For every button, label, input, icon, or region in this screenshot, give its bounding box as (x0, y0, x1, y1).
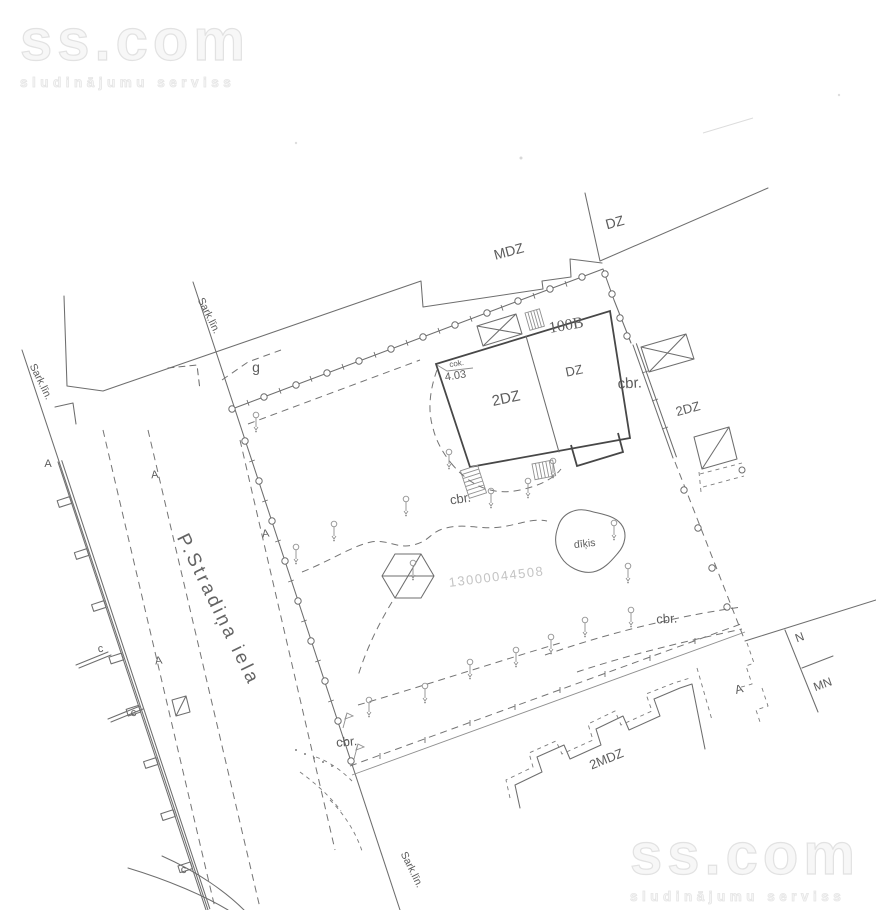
letter-c-label-1: c (97, 643, 105, 656)
cbr-label-2: cbr. (617, 374, 642, 392)
stairs-top (525, 309, 544, 330)
building-number-label: 100B (548, 314, 585, 337)
letter-a-label-2: A (151, 469, 160, 482)
letter-c-label-3: c (180, 864, 188, 877)
street-center-dashes (103, 430, 335, 908)
street-name-label: P.Stradiņa iela (172, 530, 264, 689)
cbr-label-4: cbr. (336, 733, 358, 750)
letter-n-label: N (793, 629, 806, 645)
gazebo-hexagon (382, 554, 434, 598)
elevation-abbr-label: cok. (449, 358, 465, 369)
tree-symbols (253, 412, 634, 717)
red-line-label-left: Sark.līn. (27, 362, 55, 402)
cbr-label-1: cbr. (449, 490, 472, 508)
wall-stub (92, 601, 107, 612)
letter-a-label-4: A (154, 654, 164, 667)
room-2dz-label: 2DZ (490, 387, 521, 410)
wall-stub (74, 549, 89, 560)
building-mdz-label: MDZ (492, 239, 526, 262)
room-dz-label: DZ (564, 361, 584, 379)
plan-labels: P.Stradiņa iela Sark.līn. Sark.līn. Sark… (27, 212, 834, 890)
scan-artifacts (295, 94, 840, 160)
main-building-outline (436, 309, 630, 498)
pond-label: dīķis (573, 537, 596, 551)
building-dz-top-label: DZ (604, 212, 627, 232)
letter-a-label-5: A (733, 681, 744, 697)
letter-a-label-3: A (261, 527, 271, 540)
cadastral-number-label: 13000044508 (448, 563, 545, 590)
site-plan-drawing: P.Stradiņa iela Sark.līn. Sark.līn. Sark… (0, 0, 876, 910)
wall-stub (57, 497, 72, 508)
letter-g-label: g (252, 359, 260, 375)
dotted-row (295, 749, 333, 767)
red-line-label-bottom: Sark.līn. (398, 850, 426, 890)
cbr-label-3: cbr. (656, 610, 678, 626)
north-marker-lines (738, 600, 876, 722)
building-2mdz-label: 2MDZ (587, 745, 625, 772)
building-2mdz-outline (506, 668, 712, 808)
letter-a-label-1: A (44, 458, 52, 470)
annex-2dz-label: 2DZ (674, 398, 702, 419)
wall-stub (144, 758, 159, 769)
letter-mn-label: MN (811, 674, 833, 694)
stairs-south (532, 460, 556, 480)
elevation-value-label: 4.03 (444, 368, 467, 383)
wall-stub (161, 810, 176, 821)
